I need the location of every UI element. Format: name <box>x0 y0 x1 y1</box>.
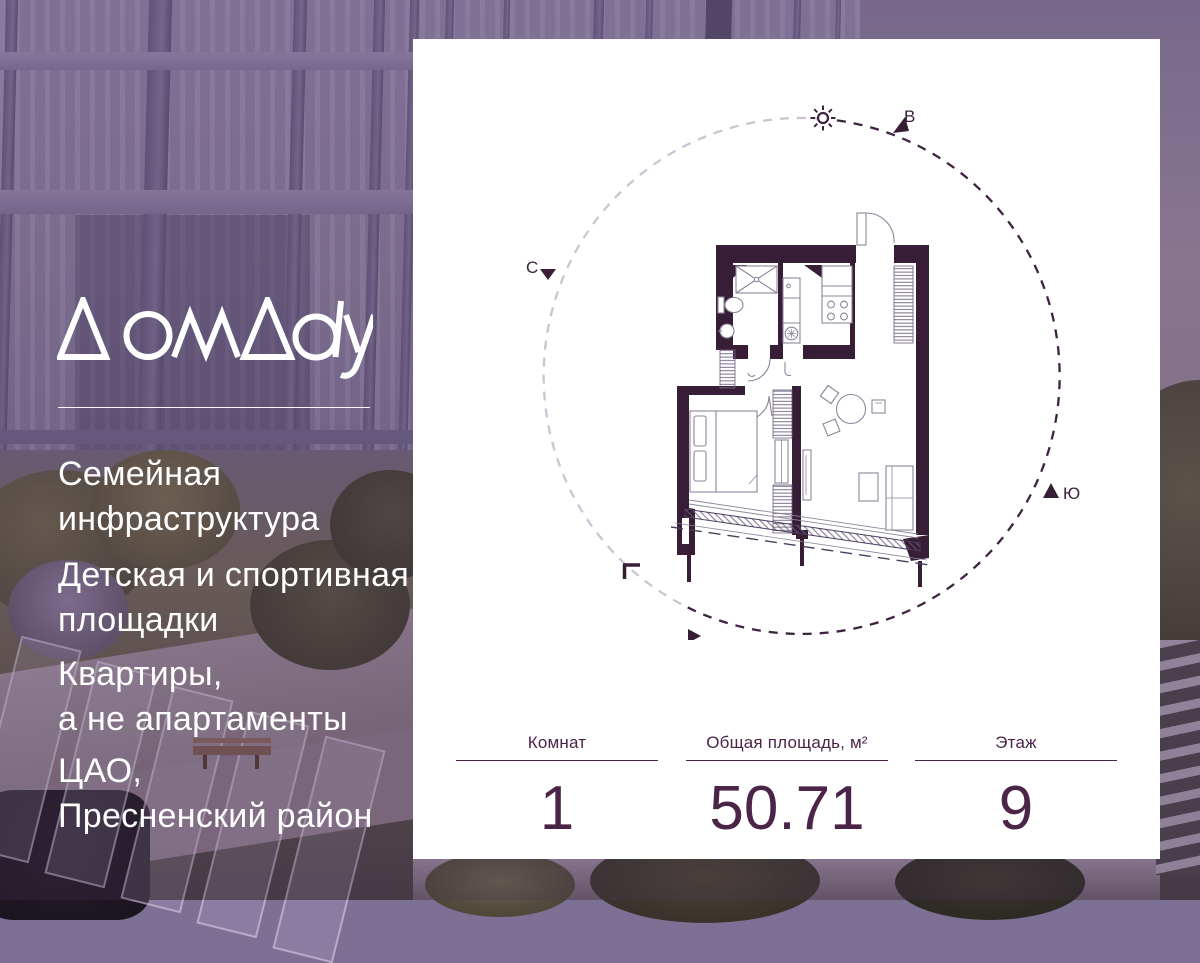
feature-flats-not-apartments: Квартиры, а не апартаменты <box>58 652 348 742</box>
kitchen-sink-icon <box>787 284 791 288</box>
entry-door-arc <box>866 213 894 243</box>
pillow <box>694 416 706 446</box>
logo-letter-o <box>127 314 170 357</box>
compass-arrow-south <box>1043 483 1059 498</box>
tv-console <box>803 450 811 500</box>
feature-family-infrastructure: Семейная инфраструктура <box>58 452 320 542</box>
plan-corner-mark <box>623 565 640 579</box>
living-room <box>803 385 913 530</box>
logo-letter-y <box>341 315 373 376</box>
pergola-fence <box>1156 640 1200 875</box>
stat-underline <box>456 760 658 761</box>
stat-area: Общая площадь, м² 50.71 <box>677 733 897 844</box>
chair <box>823 419 840 436</box>
wall-notch <box>682 518 689 544</box>
bathroom-door-arc <box>748 359 770 381</box>
feature-line: а не апартаменты <box>58 697 348 742</box>
feature-line: Семейная <box>58 452 320 497</box>
feature-line: площадки <box>58 598 409 643</box>
stat-value: 1 <box>447 773 667 844</box>
logo-letter-D1 <box>60 300 106 357</box>
domdau-logo <box>57 297 373 389</box>
compass-arrow-north <box>540 269 556 280</box>
bedroom-door-leaf <box>769 396 772 416</box>
brand-name-text: ДомДау <box>0 0 1 1</box>
doors <box>745 213 894 420</box>
kitchen <box>783 266 852 343</box>
feature-line: Квартиры, <box>58 652 348 697</box>
stat-underline <box>915 760 1117 761</box>
left-panel: ДомДау Семейная инфраструктура Детская и… <box>0 0 413 900</box>
feature-line: Пресненский район <box>58 794 373 839</box>
stat-value: 50.71 <box>677 773 897 844</box>
side-table <box>872 400 885 413</box>
sink-icon <box>720 324 734 338</box>
stat-label: Комнат <box>447 733 667 753</box>
pillow <box>694 451 706 481</box>
entry-door-leaf <box>857 213 866 245</box>
floor-plan: В С Ю З <box>520 80 1080 640</box>
kitchen-counter <box>822 266 852 323</box>
kitchen-door-leaf <box>785 362 791 376</box>
dining-table <box>837 395 866 424</box>
bathroom-door-leaf <box>748 373 755 376</box>
compass-label-north: С <box>526 258 538 277</box>
sun-icon <box>811 106 836 131</box>
stat-value: 9 <box>906 773 1126 844</box>
feature-playgrounds: Детская и спортивная площадки <box>58 553 409 643</box>
brand-divider <box>58 407 370 408</box>
logo-letter-a <box>296 317 337 358</box>
logo-letter-m <box>174 314 238 357</box>
chair <box>820 385 838 403</box>
toilet-icon <box>725 298 743 313</box>
feature-line: ЦАО, <box>58 749 373 794</box>
stat-rooms: Комнат 1 <box>447 733 667 844</box>
stat-label: Этаж <box>906 733 1126 753</box>
stat-underline <box>686 760 888 761</box>
logo-letter-D2 <box>244 300 291 357</box>
compass-arrow-west <box>688 629 701 640</box>
feature-line: инфраструктура <box>58 497 320 542</box>
toilet-tank <box>718 297 724 313</box>
apartment-card: В С Ю З <box>413 39 1160 859</box>
compass-label-south: Ю <box>1063 484 1080 503</box>
feature-line: Детская и спортивная <box>58 553 409 598</box>
coffee-table <box>859 473 878 501</box>
stat-floor: Этаж 9 <box>906 733 1126 844</box>
stat-label: Общая площадь, м² <box>677 733 897 753</box>
logo-letter-a-stem <box>336 301 342 357</box>
bedroom <box>690 411 757 492</box>
feature-district: ЦАО, Пресненский район <box>58 749 373 839</box>
